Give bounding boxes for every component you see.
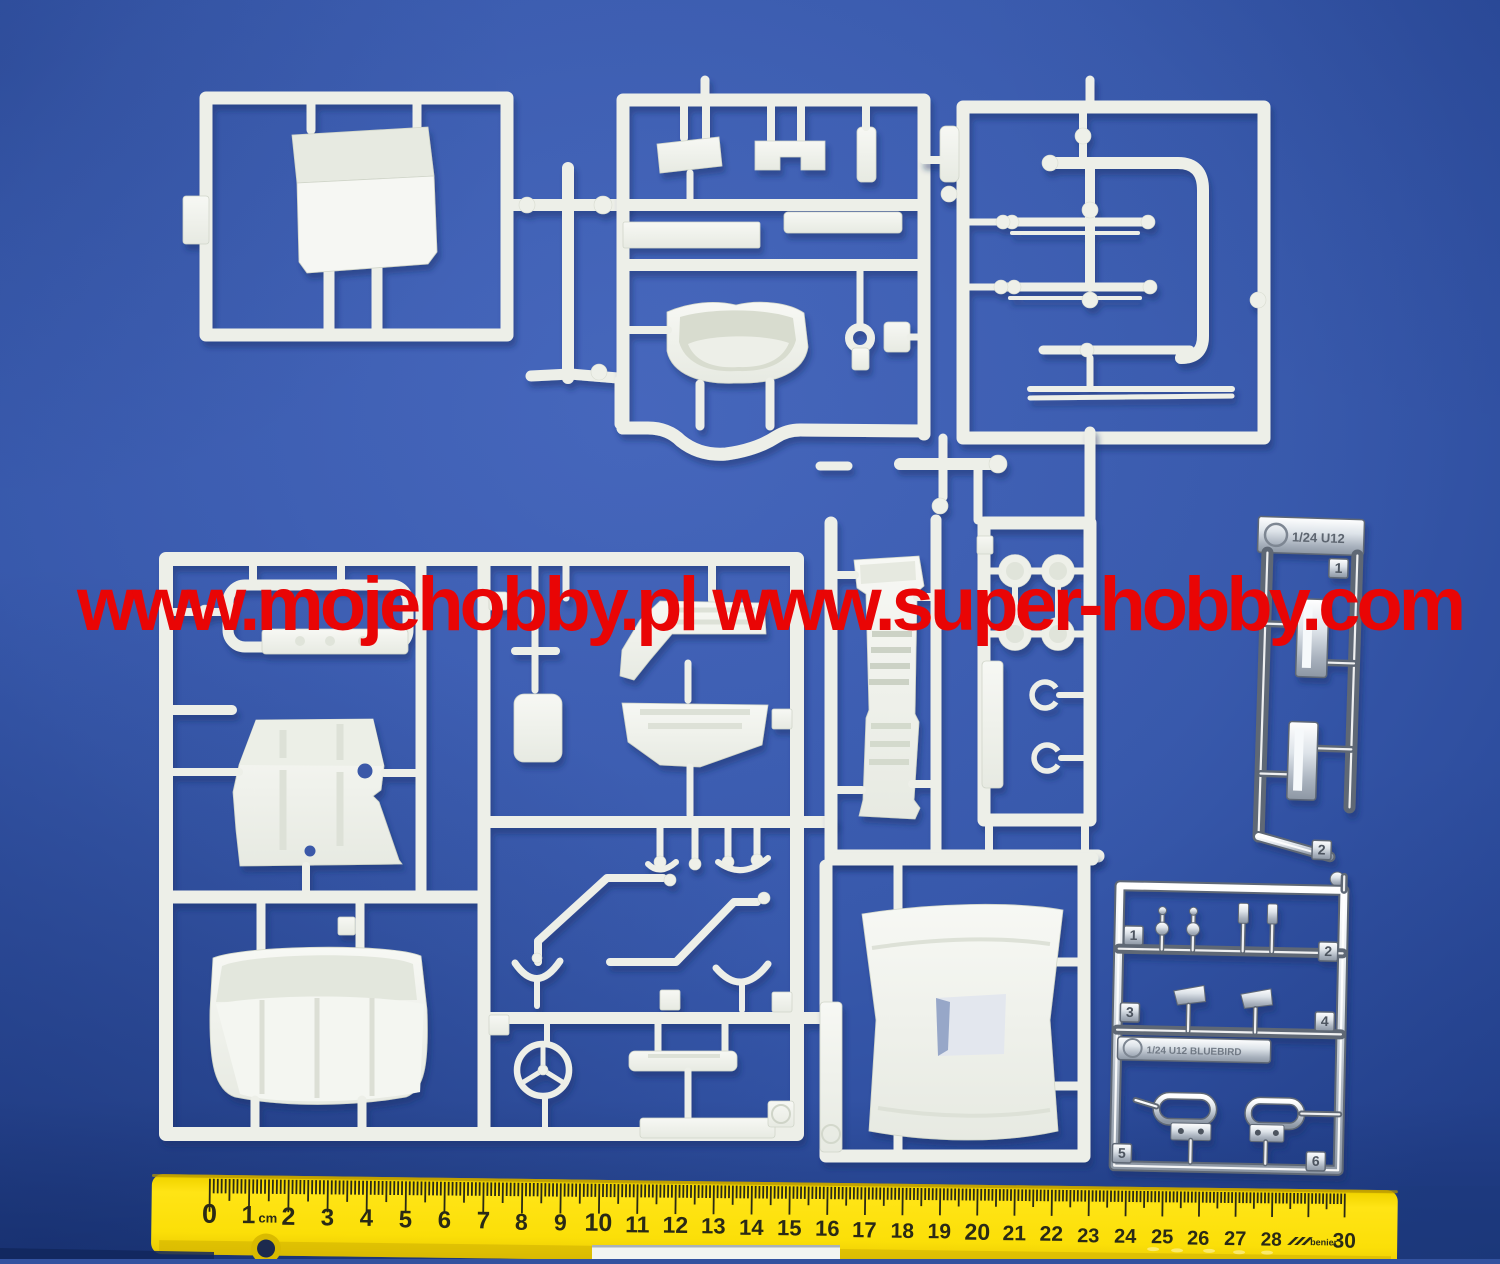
svg-text:cm: cm — [258, 1210, 277, 1225]
svg-text:6: 6 — [1312, 1153, 1320, 1169]
svg-text:3: 3 — [1126, 1004, 1134, 1020]
svg-text:4: 4 — [1321, 1013, 1329, 1029]
svg-text:16: 16 — [815, 1216, 840, 1241]
svg-text:3: 3 — [321, 1204, 335, 1231]
svg-text:22: 22 — [1039, 1223, 1063, 1246]
svg-text:27: 27 — [1224, 1228, 1247, 1250]
svg-text:23: 23 — [1077, 1225, 1100, 1247]
svg-text:20: 20 — [964, 1219, 990, 1245]
svg-text:www.mojehobby.pl www.super-hob: www.mojehobby.pl www.super-hobby.com — [76, 562, 1462, 647]
svg-text:28: 28 — [1261, 1230, 1282, 1251]
svg-text:6: 6 — [438, 1207, 452, 1234]
svg-text:8: 8 — [515, 1209, 528, 1235]
svg-text:5: 5 — [1118, 1145, 1126, 1161]
svg-text:19: 19 — [927, 1220, 951, 1243]
svg-text:5: 5 — [399, 1206, 413, 1233]
svg-text:4: 4 — [360, 1205, 374, 1232]
svg-text:1/24 U12 BLUEBIRD: 1/24 U12 BLUEBIRD — [1146, 1045, 1241, 1058]
svg-text:14: 14 — [739, 1215, 765, 1240]
svg-text:1: 1 — [1129, 927, 1137, 943]
svg-text:11: 11 — [625, 1211, 650, 1237]
svg-text:1: 1 — [241, 1201, 255, 1229]
svg-text:18: 18 — [890, 1220, 914, 1243]
svg-text:12: 12 — [662, 1212, 688, 1238]
svg-text:26: 26 — [1187, 1228, 1210, 1250]
svg-text:13: 13 — [701, 1213, 726, 1238]
svg-text:10: 10 — [584, 1209, 612, 1237]
svg-text:24: 24 — [1114, 1226, 1137, 1248]
svg-text:1/24 U12: 1/24 U12 — [1292, 529, 1345, 546]
svg-text:17: 17 — [852, 1217, 877, 1242]
svg-text:7: 7 — [477, 1207, 491, 1234]
svg-text:benier: benier — [1310, 1237, 1338, 1247]
svg-text:25: 25 — [1151, 1226, 1174, 1248]
svg-text:21: 21 — [1002, 1222, 1026, 1245]
svg-text:2: 2 — [1324, 943, 1332, 959]
svg-text:9: 9 — [554, 1209, 567, 1235]
svg-text:0: 0 — [202, 1199, 217, 1229]
svg-text:15: 15 — [777, 1215, 802, 1240]
svg-text:2: 2 — [281, 1203, 295, 1231]
svg-text:2: 2 — [1318, 841, 1326, 857]
